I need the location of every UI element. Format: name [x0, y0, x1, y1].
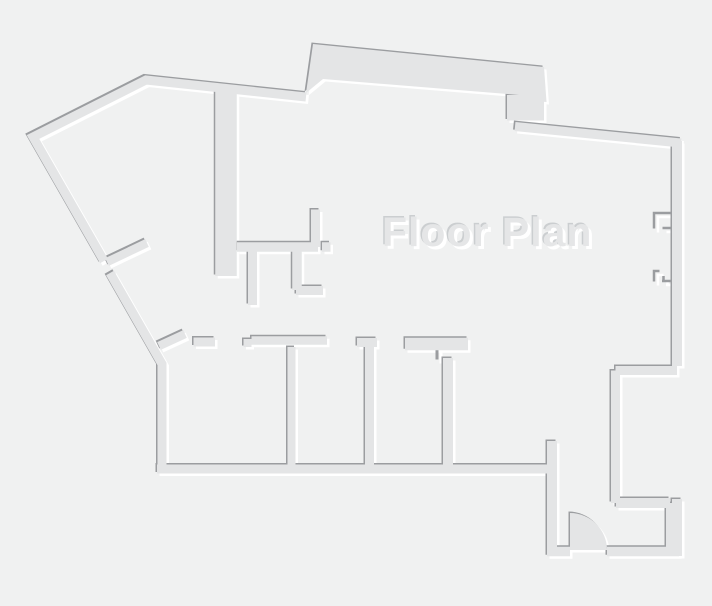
pillar-under-bump — [507, 95, 544, 121]
outer-lower-left-and-west — [109, 272, 161, 472]
floor-plan-canvas: Floor Plan — [0, 0, 712, 606]
entry-door-swing — [570, 513, 607, 550]
outer-lower-left-and-west — [110, 273, 162, 473]
floor-plan-walls — [0, 0, 712, 606]
diagonal-stub-lower — [159, 334, 185, 346]
floor-plan-title: Floor Plan — [382, 209, 592, 256]
outer-upper-left-and-top — [32, 79, 305, 260]
window-notch-1-bracket — [654, 213, 671, 229]
outer-upper-left-and-top — [33, 80, 306, 261]
top-bump — [306, 44, 547, 102]
